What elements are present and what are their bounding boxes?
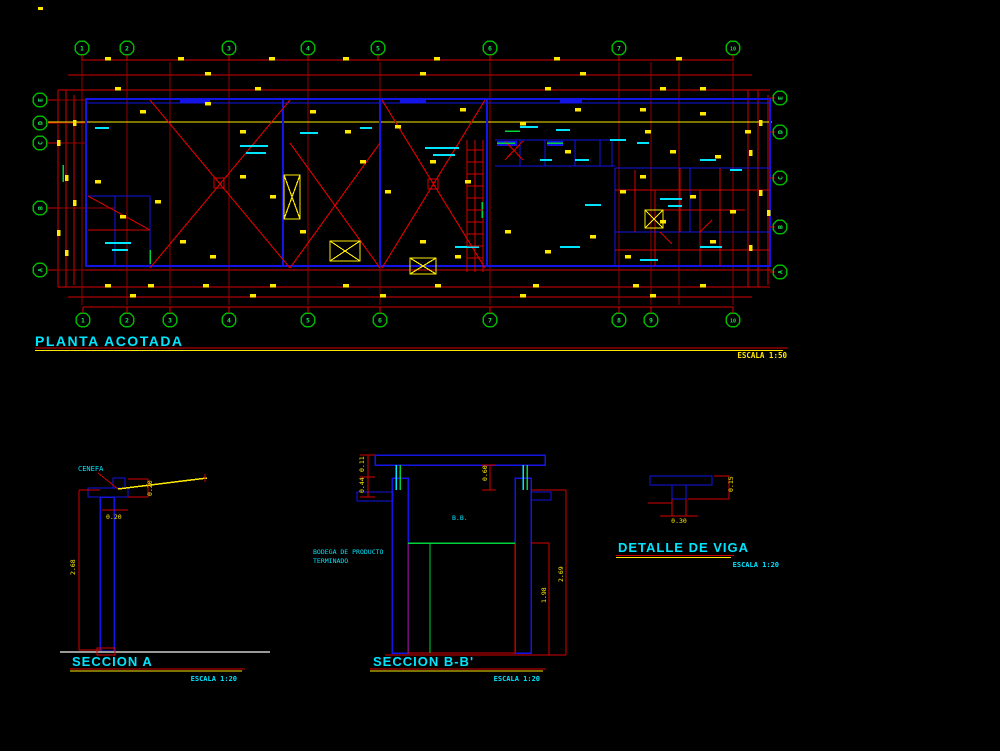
axis-bubble-label: 2 bbox=[125, 44, 129, 52]
roof-slab bbox=[375, 455, 545, 465]
dim-269: 2.69 bbox=[557, 566, 565, 582]
axis-bubble-label: 4 bbox=[227, 316, 231, 324]
seccion-a-scale: ESCALA 1:20 bbox=[191, 675, 237, 683]
plan-partitions bbox=[88, 140, 770, 272]
axis-bubble-label: B bbox=[776, 225, 784, 229]
wall-cap bbox=[88, 488, 128, 497]
axis-bubble-label: 1 bbox=[80, 44, 84, 52]
axis-bubble-label: 2 bbox=[125, 316, 129, 324]
dim-cap: 0.20 bbox=[146, 480, 154, 496]
axis-bubble-label: D bbox=[36, 121, 44, 125]
dim-wall-height: 2.68 bbox=[69, 559, 77, 575]
dim-beam-depth: 0.15 bbox=[727, 476, 735, 492]
plan-dimension-lines bbox=[50, 60, 772, 307]
dimension-text-marks bbox=[57, 57, 771, 298]
axis-bubble-label: D bbox=[776, 130, 784, 134]
room-label-1: BODEGA DE PRODUCTO bbox=[313, 548, 384, 556]
dim-198: 1.98 bbox=[540, 587, 548, 603]
axis-bubble-label: 8 bbox=[617, 316, 621, 324]
axis-bubble-label: 5 bbox=[376, 44, 380, 52]
cenefa-line bbox=[118, 478, 207, 489]
seccion-bb-title: SECCION B-B' bbox=[373, 654, 474, 669]
axis-bubble-label: 9 bbox=[649, 316, 653, 324]
axis-bubbles: 12345671012345678910EDCBAEDCBA bbox=[33, 41, 787, 327]
axis-bubble-label: A bbox=[36, 268, 44, 272]
axis-bubble-label: 10 bbox=[730, 318, 736, 324]
plan-yellow-columns bbox=[284, 175, 663, 274]
axis-bubble-label: 4 bbox=[306, 44, 310, 52]
stray-mark bbox=[38, 7, 43, 10]
level-label: B.B. bbox=[452, 514, 468, 522]
right-ledge bbox=[531, 492, 551, 500]
detalle-dims bbox=[648, 476, 729, 516]
plan-scale-label: ESCALA 1:50 bbox=[737, 351, 787, 360]
dim-ledge: 0.20 bbox=[106, 513, 122, 521]
room-label-2: TERMINADO bbox=[313, 557, 348, 565]
dim-011: 0.11 bbox=[358, 456, 366, 472]
dim-060: 0.60 bbox=[481, 465, 489, 481]
cad-canvas[interactable]: 12345671012345678910EDCBAEDCBA PLANTA AC… bbox=[0, 0, 1000, 751]
axis-bubble-label: 10 bbox=[730, 46, 736, 52]
axis-bubble-label: 6 bbox=[378, 316, 382, 324]
axis-bubble-label: 3 bbox=[227, 44, 231, 52]
axis-bubble-label: C bbox=[36, 141, 44, 145]
beam-slab bbox=[650, 476, 712, 485]
axis-bubble-label: 6 bbox=[488, 44, 492, 52]
plan-title: PLANTA ACOTADA bbox=[35, 333, 184, 349]
axis-bubble-label: 7 bbox=[488, 316, 492, 324]
seccion-a: CENEFA 2.68 0.20 0.20 SECCION A ESCALA 1… bbox=[60, 465, 270, 683]
seccion-bb-scale: ESCALA 1:20 bbox=[494, 675, 540, 683]
dim-044: 0.44 bbox=[358, 477, 366, 493]
axis-bubble-label: 1 bbox=[81, 316, 85, 324]
detalle-de-viga: 0.15 0.30 DETALLE DE VIGA ESCALA 1:20 bbox=[616, 476, 779, 569]
cenefa-label: CENEFA bbox=[78, 465, 104, 473]
axis-bubble-label: C bbox=[776, 176, 784, 180]
right-column bbox=[515, 478, 531, 653]
axis-bubble-label: B bbox=[36, 206, 44, 210]
axis-bubble-label: 5 bbox=[306, 316, 310, 324]
mesh-wall bbox=[408, 543, 515, 653]
seccion-a-title: SECCION A bbox=[72, 654, 153, 669]
clerestory-frames bbox=[396, 465, 527, 490]
dim-beam-width: 0.30 bbox=[671, 517, 687, 525]
plan-green-marks bbox=[63, 131, 563, 264]
seccion-bb-dims bbox=[360, 455, 566, 655]
floor-plan: 12345671012345678910EDCBAEDCBA PLANTA AC… bbox=[33, 7, 788, 360]
axis-bubble-label: E bbox=[776, 96, 784, 100]
axis-bubble-label: 3 bbox=[168, 316, 172, 324]
detalle-title: DETALLE DE VIGA bbox=[618, 540, 749, 555]
axis-bubble-label: 7 bbox=[617, 44, 621, 52]
seccion-bb: B.B. BODEGA DE PRODUCTO TERMINADO 0.11 0… bbox=[313, 455, 566, 683]
cenefa-leader bbox=[98, 473, 118, 489]
beam-stub bbox=[672, 485, 686, 499]
detalle-scale: ESCALA 1:20 bbox=[733, 561, 779, 569]
axis-bubble-label: E bbox=[36, 98, 44, 102]
left-column bbox=[392, 478, 408, 653]
axis-bubble-label: A bbox=[776, 270, 784, 274]
